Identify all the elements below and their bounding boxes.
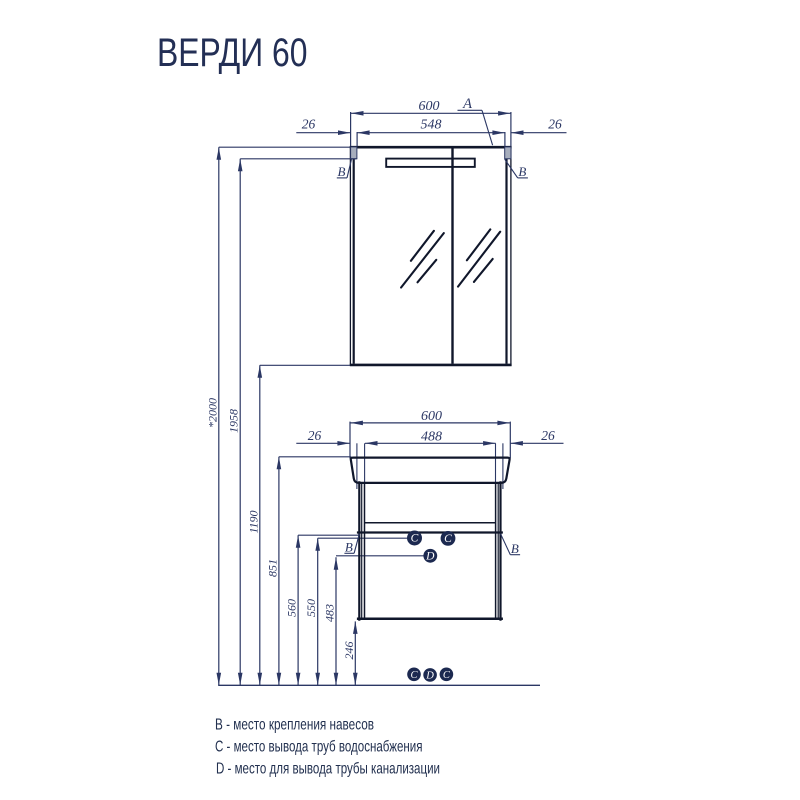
- svg-text:1190: 1190: [246, 510, 260, 533]
- svg-text:600: 600: [421, 409, 442, 424]
- svg-text:548: 548: [421, 118, 442, 133]
- svg-text:D: D: [425, 550, 435, 562]
- svg-text:A: A: [462, 96, 472, 112]
- svg-text:550: 550: [304, 599, 318, 617]
- svg-text:1958: 1958: [227, 409, 241, 433]
- svg-text:C: C: [410, 670, 418, 681]
- svg-text:C: C: [444, 533, 452, 545]
- svg-text:ВЕРДИ 60: ВЕРДИ 60: [157, 31, 308, 75]
- svg-text:D - место для вывода трубы кан: D - место для вывода трубы канализации: [216, 761, 440, 778]
- svg-text:246: 246: [342, 642, 356, 660]
- svg-text:488: 488: [421, 429, 442, 444]
- svg-text:B - место крепления навесов: B - место крепления навесов: [215, 717, 374, 734]
- svg-text:26: 26: [302, 116, 316, 131]
- svg-text:26: 26: [308, 428, 322, 443]
- svg-text:26: 26: [548, 116, 562, 131]
- svg-text:C: C: [443, 670, 451, 681]
- svg-text:D: D: [425, 671, 434, 682]
- svg-text:560: 560: [285, 599, 299, 617]
- svg-text:B: B: [518, 164, 526, 179]
- svg-text:26: 26: [541, 428, 555, 443]
- svg-text:483: 483: [323, 604, 337, 622]
- svg-text:B: B: [345, 540, 353, 555]
- svg-text:851: 851: [265, 559, 279, 577]
- svg-text:C: C: [411, 533, 419, 545]
- svg-text:600: 600: [419, 99, 440, 114]
- svg-text:B: B: [338, 164, 346, 179]
- svg-text:C - место вывода труб водоснаб: C - место вывода труб водоснабжения: [215, 739, 423, 756]
- svg-text:*2000: *2000: [205, 398, 219, 428]
- svg-text:B: B: [511, 541, 519, 556]
